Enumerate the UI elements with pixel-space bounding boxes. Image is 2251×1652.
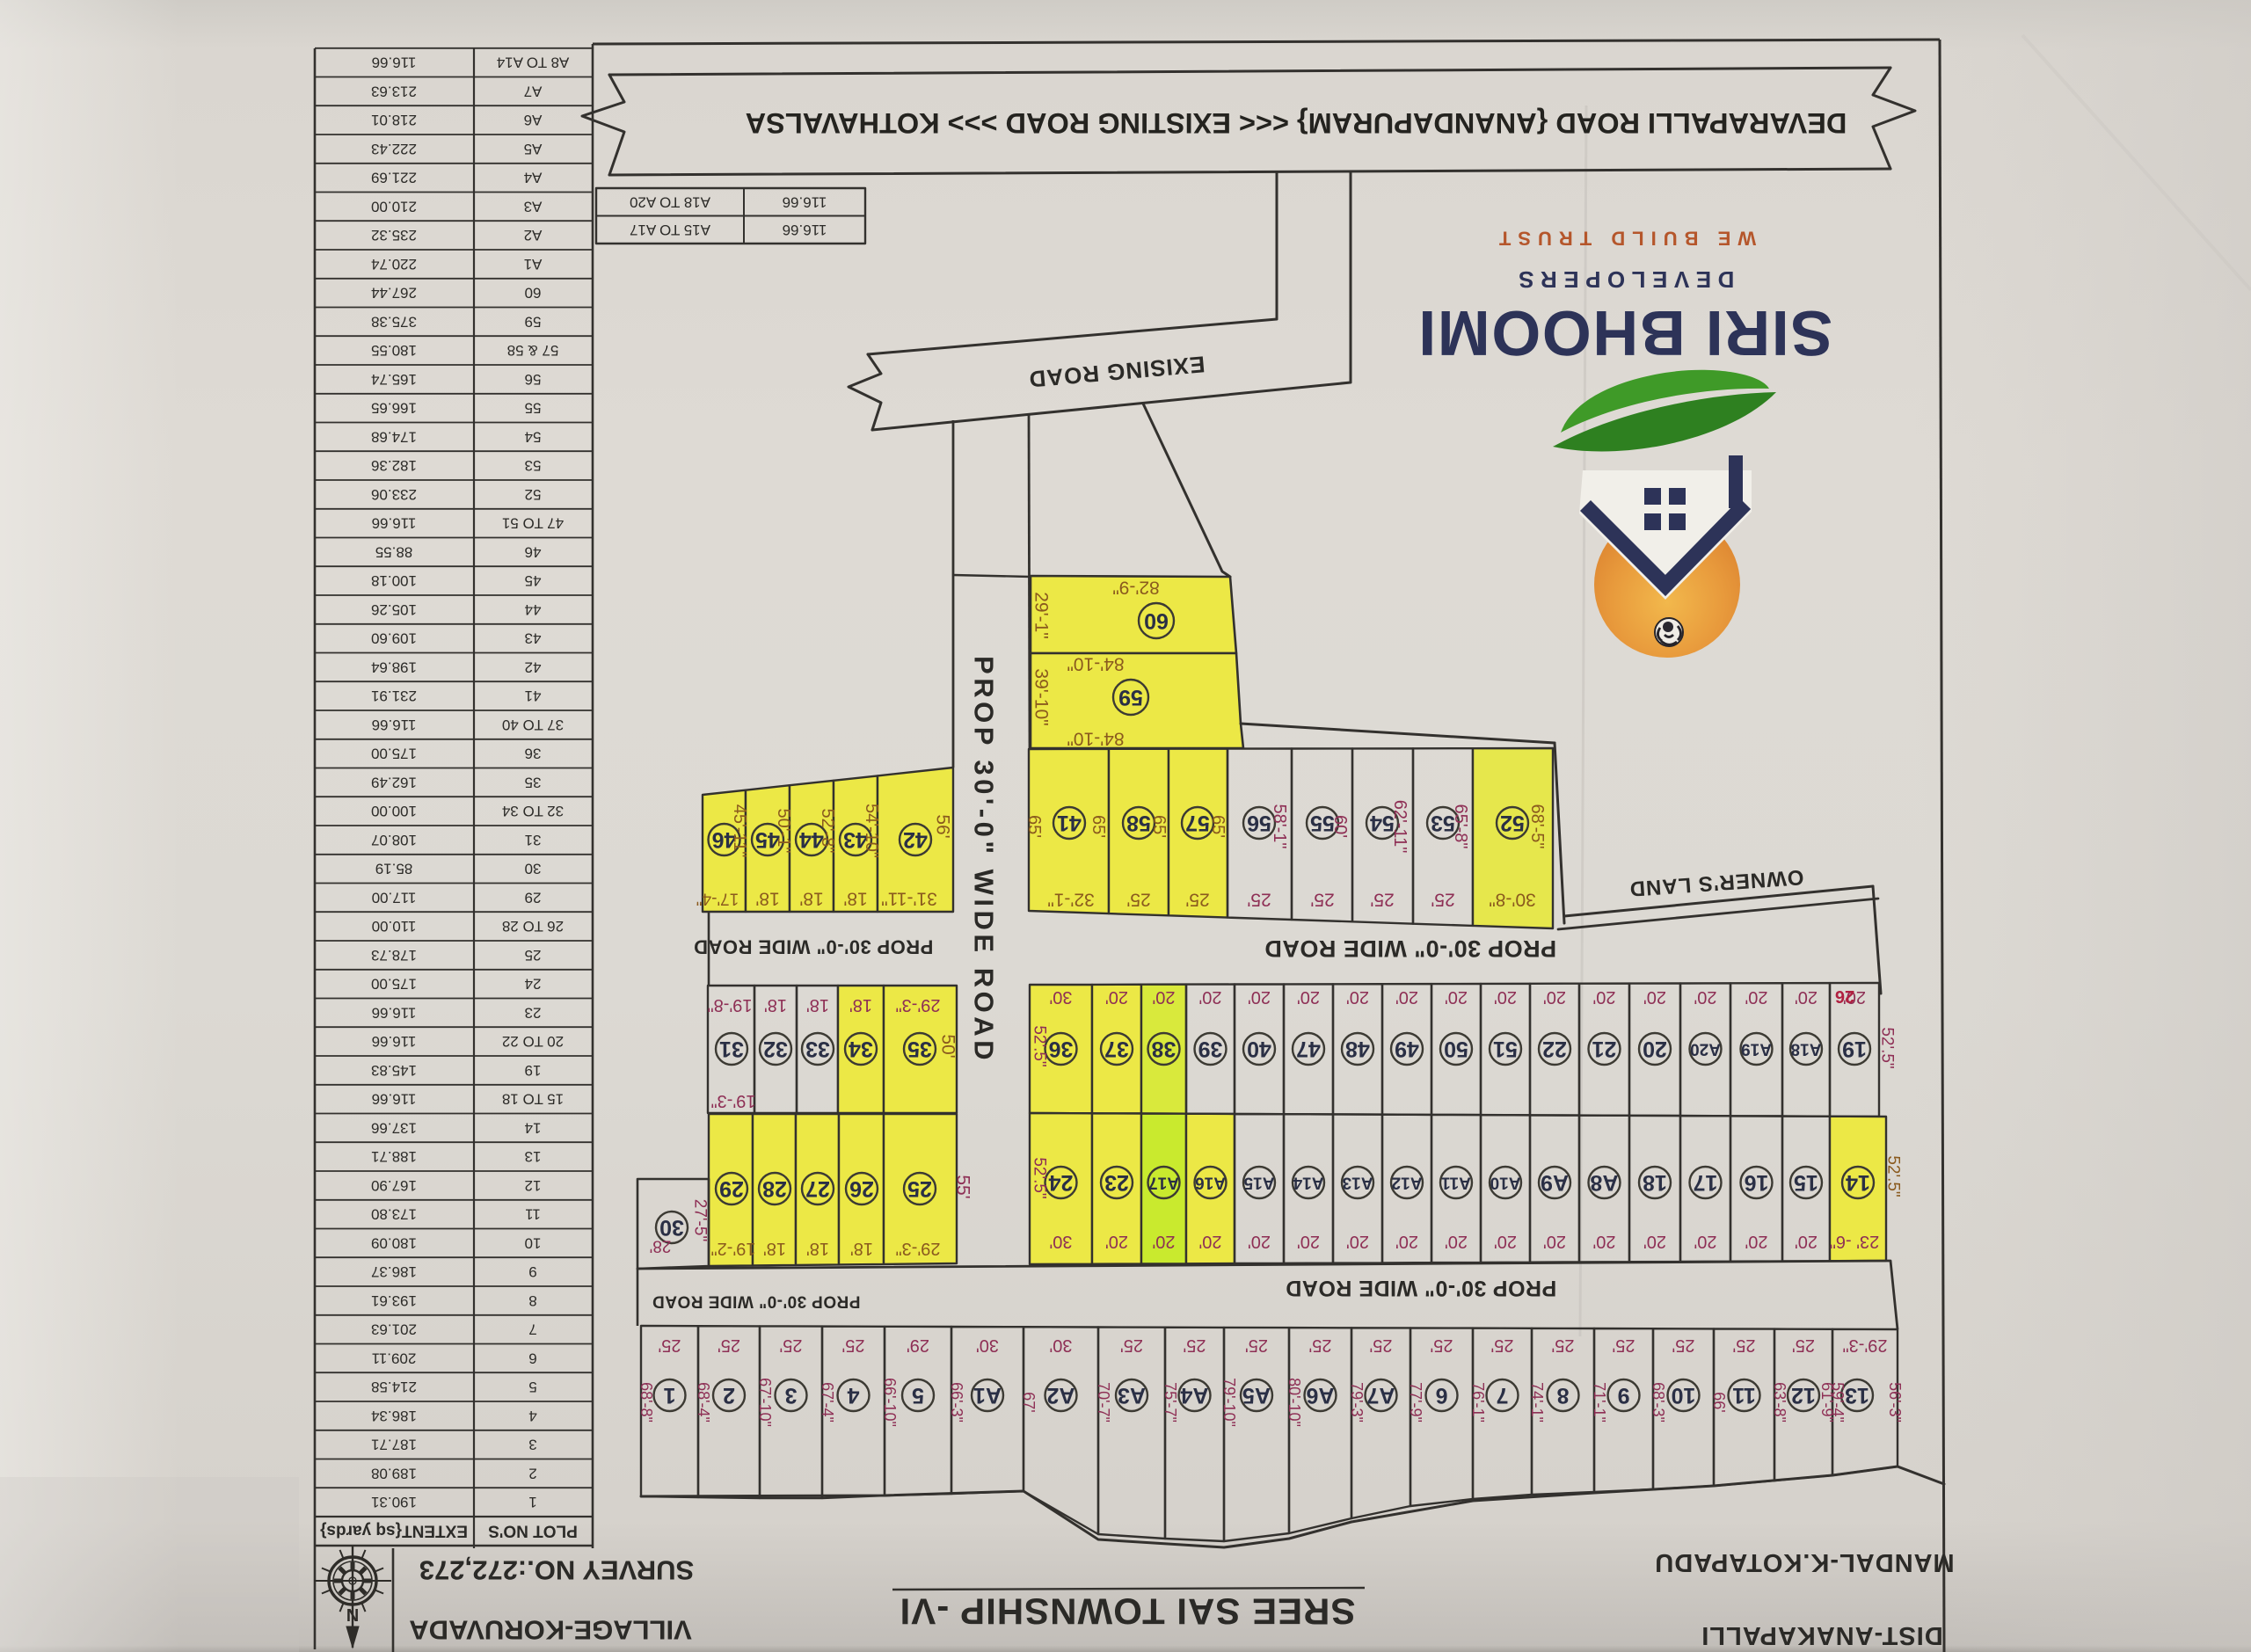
svg-text:26 TO 28: 26 TO 28 [502, 918, 564, 935]
svg-text:8: 8 [528, 1292, 536, 1309]
svg-text:58'-1": 58'-1" [1270, 804, 1289, 849]
svg-text:63'-8": 63'-8" [1771, 1382, 1788, 1423]
svg-text:39: 39 [1198, 1037, 1223, 1061]
svg-text:186.37: 186.37 [371, 1263, 417, 1280]
svg-text:30': 30' [976, 1335, 999, 1355]
svg-text:25': 25' [1310, 890, 1334, 910]
svg-text:37 TO 40: 37 TO 40 [502, 717, 564, 733]
svg-text:11: 11 [1732, 1383, 1756, 1408]
svg-text:A2: A2 [1047, 1383, 1075, 1408]
svg-text:19'-2": 19'-2" [711, 1239, 756, 1258]
svg-text:9: 9 [528, 1263, 536, 1280]
svg-text:A13: A13 [1343, 1174, 1373, 1192]
svg-text:116.66: 116.66 [783, 222, 827, 238]
svg-text:8: 8 [1556, 1383, 1569, 1408]
svg-text:DEVARAPALLI ROAD {ANANDAPURAM}: DEVARAPALLI ROAD {ANANDAPURAM} <<< EXIST… [746, 107, 1847, 139]
svg-text:25': 25' [718, 1335, 740, 1355]
svg-text:A10: A10 [1490, 1174, 1521, 1192]
svg-text:19'-3": 19'-3" [711, 1091, 756, 1110]
svg-text:9: 9 [1618, 1383, 1630, 1408]
svg-text:80'-10": 80'-10" [1286, 1378, 1303, 1427]
svg-text:116.66: 116.66 [372, 717, 417, 733]
svg-text:76'-1": 76'-1" [1469, 1382, 1487, 1423]
svg-text:20': 20' [1745, 1232, 1767, 1251]
svg-text:A15 TO A17: A15 TO A17 [630, 222, 710, 238]
svg-text:67': 67' [1020, 1392, 1038, 1412]
svg-text:PROP 30'-0" WIDE ROAD: PROP 30'-0" WIDE ROAD [1286, 1276, 1556, 1300]
svg-text:174.68: 174.68 [371, 428, 417, 445]
svg-text:19: 19 [525, 1062, 542, 1079]
svg-text:20': 20' [1445, 987, 1468, 1007]
svg-text:267.44: 267.44 [371, 285, 417, 302]
svg-text:221.69: 221.69 [371, 170, 417, 186]
svg-text:58: 58 [1126, 811, 1151, 835]
svg-text:23' -6": 23' -6" [1830, 1232, 1880, 1251]
svg-text:42: 42 [525, 659, 542, 675]
svg-text:31'-11": 31'-11" [881, 889, 937, 909]
svg-text:220.74: 220.74 [371, 256, 417, 273]
svg-text:178.73: 178.73 [371, 947, 417, 964]
svg-text:29'-3": 29'-3" [896, 995, 941, 1015]
svg-text:79'-10": 79'-10" [1220, 1378, 1238, 1427]
svg-text:20': 20' [1105, 1232, 1128, 1251]
svg-text:45: 45 [525, 572, 542, 589]
svg-text:50'-1": 50'-1" [774, 809, 793, 854]
svg-text:20': 20' [1643, 1232, 1666, 1251]
svg-text:A1: A1 [524, 256, 543, 273]
svg-text:46: 46 [525, 543, 542, 560]
svg-text:20': 20' [1297, 1232, 1320, 1251]
svg-text:38: 38 [1152, 1037, 1176, 1061]
svg-text:74'-1": 74'-1" [1528, 1382, 1546, 1423]
svg-text:11: 11 [525, 1206, 541, 1223]
svg-text:42: 42 [903, 827, 928, 852]
svg-text:A17: A17 [1148, 1174, 1179, 1192]
svg-text:56: 56 [1247, 811, 1271, 835]
svg-text:28': 28' [650, 1237, 672, 1255]
svg-text:A9: A9 [1541, 1170, 1569, 1195]
svg-text:116.66: 116.66 [372, 1004, 417, 1021]
svg-text:25: 25 [907, 1176, 932, 1201]
svg-text:25': 25' [1490, 1335, 1513, 1355]
svg-text:116.66: 116.66 [372, 1033, 417, 1050]
svg-text:25': 25' [1247, 890, 1271, 910]
svg-text:A18 TO A20: A18 TO A20 [630, 194, 710, 211]
svg-text:4: 4 [528, 1408, 536, 1424]
svg-text:A7: A7 [524, 83, 543, 99]
svg-text:52'.5": 52'.5" [1031, 1025, 1049, 1066]
svg-text:DEVELOPERS: DEVELOPERS [1512, 266, 1735, 293]
svg-text:14: 14 [525, 1119, 542, 1136]
svg-text:162.49: 162.49 [371, 774, 417, 790]
svg-text:25': 25' [1672, 1335, 1694, 1355]
svg-text:52'.5": 52'.5" [1884, 1155, 1903, 1197]
svg-text:182.36: 182.36 [371, 457, 417, 474]
svg-text:PROP 30'-0" WIDE ROAD: PROP 30'-0" WIDE ROAD [1264, 935, 1556, 962]
svg-text:68'-5": 68'-5" [1527, 804, 1547, 849]
svg-text:116.66: 116.66 [372, 55, 417, 71]
svg-text:84'-10": 84'-10" [1067, 654, 1124, 674]
svg-text:222.43: 222.43 [371, 141, 417, 157]
svg-text:41: 41 [525, 688, 542, 704]
svg-text:67'-4": 67'-4" [819, 1382, 836, 1423]
svg-text:VILLAGE-KORUVADA: VILLAGE-KORUVADA [409, 1615, 691, 1646]
svg-text:137.66: 137.66 [371, 1119, 417, 1136]
svg-text:56': 56' [933, 814, 953, 838]
svg-text:N: N [346, 1605, 359, 1624]
svg-text:37: 37 [1104, 1037, 1129, 1061]
svg-text:13: 13 [525, 1148, 542, 1165]
svg-text:32'-1": 32'-1" [1047, 890, 1095, 910]
svg-text:17'-4": 17'-4" [696, 890, 739, 908]
svg-text:24: 24 [1049, 1170, 1074, 1195]
svg-text:26: 26 [849, 1176, 874, 1201]
svg-text:20': 20' [1297, 987, 1320, 1007]
svg-text:20': 20' [1445, 1232, 1468, 1251]
svg-text:20': 20' [1198, 1232, 1221, 1251]
svg-text:82'-9": 82'-9" [1112, 578, 1160, 598]
svg-text:32: 32 [763, 1037, 788, 1061]
svg-text:57: 57 [1185, 811, 1210, 835]
svg-text:A14: A14 [1293, 1174, 1323, 1192]
svg-text:A15: A15 [1243, 1174, 1274, 1192]
svg-text:15: 15 [1794, 1170, 1818, 1195]
svg-text:25': 25' [841, 1335, 864, 1355]
svg-text:PLOT NO'S: PLOT NO'S [488, 1522, 578, 1540]
svg-text:52: 52 [1500, 811, 1525, 835]
svg-text:20': 20' [1543, 987, 1566, 1007]
svg-text:55': 55' [953, 1175, 973, 1198]
svg-text:190.31: 190.31 [371, 1494, 417, 1510]
svg-text:54: 54 [525, 428, 542, 445]
svg-text:35: 35 [525, 774, 542, 790]
svg-text:180.55: 180.55 [371, 342, 417, 359]
svg-text:100.00: 100.00 [371, 803, 417, 819]
svg-text:85.19: 85.19 [375, 861, 413, 877]
svg-text:235.32: 235.32 [371, 227, 417, 244]
svg-text:A5: A5 [1242, 1383, 1271, 1408]
svg-text:18': 18' [799, 889, 823, 909]
svg-text:84'-10": 84'-10" [1067, 729, 1124, 749]
svg-text:209.11: 209.11 [372, 1350, 417, 1366]
svg-text:175.00: 175.00 [371, 746, 417, 762]
svg-text:65': 65' [1208, 815, 1227, 838]
svg-text:55: 55 [525, 400, 542, 417]
svg-text:17: 17 [1694, 1170, 1718, 1195]
svg-text:105.26: 105.26 [371, 601, 417, 618]
svg-text:30': 30' [1049, 1335, 1072, 1355]
svg-text:65': 65' [1024, 815, 1044, 838]
svg-text:20': 20' [1694, 987, 1716, 1007]
svg-text:25': 25' [1792, 1335, 1815, 1355]
svg-text:29'-3": 29'-3" [896, 1239, 941, 1258]
svg-text:EXTENT{sq yards}: EXTENT{sq yards} [319, 1522, 467, 1540]
svg-text:25': 25' [1245, 1335, 1268, 1355]
svg-text:3: 3 [785, 1383, 798, 1408]
svg-text:SURVEY NO.:272,273: SURVEY NO.:272,273 [419, 1555, 694, 1586]
svg-text:25': 25' [1185, 890, 1209, 910]
svg-text:189.08: 189.08 [371, 1465, 417, 1481]
svg-text:A7: A7 [1367, 1383, 1395, 1408]
svg-text:43: 43 [525, 630, 542, 647]
svg-text:25': 25' [1732, 1335, 1755, 1355]
svg-text:108.07: 108.07 [371, 832, 417, 848]
svg-text:A5: A5 [524, 141, 543, 157]
svg-text:7: 7 [1497, 1383, 1509, 1408]
svg-text:375.38: 375.38 [371, 313, 417, 330]
svg-text:A18: A18 [1791, 1040, 1822, 1059]
svg-text:52'.5": 52'.5" [1031, 1157, 1049, 1198]
svg-text:A1: A1 [973, 1383, 1002, 1408]
svg-text:WE BUILD TRUST: WE BUILD TRUST [1492, 228, 1756, 250]
svg-text:A19: A19 [1741, 1040, 1772, 1059]
svg-text:18': 18' [806, 1239, 829, 1258]
svg-text:A4: A4 [1180, 1383, 1208, 1408]
svg-text:31: 31 [719, 1037, 744, 1061]
svg-text:49: 49 [1395, 1037, 1419, 1061]
svg-text:52'.5": 52'.5" [1878, 1027, 1897, 1068]
svg-text:2: 2 [723, 1383, 735, 1408]
svg-text:50': 50' [938, 1034, 958, 1058]
svg-text:16: 16 [1745, 1170, 1769, 1195]
svg-text:A16: A16 [1195, 1174, 1226, 1192]
svg-text:29: 29 [525, 889, 542, 906]
svg-text:13: 13 [1845, 1383, 1869, 1408]
svg-text:20': 20' [1795, 987, 1818, 1007]
svg-text:20': 20' [1494, 987, 1517, 1007]
svg-text:12: 12 [525, 1177, 542, 1194]
svg-text:214.58: 214.58 [371, 1379, 417, 1395]
svg-text:18': 18' [763, 1239, 786, 1258]
svg-text:25': 25' [658, 1335, 681, 1355]
svg-text:20': 20' [1152, 987, 1175, 1007]
svg-text:25': 25' [1120, 1335, 1143, 1355]
svg-text:30': 30' [1049, 987, 1072, 1007]
svg-text:30': 30' [1049, 1232, 1072, 1251]
svg-text:22: 22 [1542, 1037, 1567, 1061]
svg-text:A3: A3 [524, 198, 543, 215]
svg-text:116.66: 116.66 [372, 515, 417, 532]
svg-text:20': 20' [1105, 987, 1128, 1007]
svg-text:DIST-ANAKAPALLI: DIST-ANAKAPALLI [1701, 1621, 1942, 1649]
svg-text:23: 23 [525, 1004, 542, 1021]
svg-text:29'-1": 29'-1" [1031, 592, 1052, 639]
svg-text:39'-10": 39'-10" [1031, 668, 1052, 725]
svg-text:25': 25' [1308, 1335, 1331, 1355]
svg-text:19: 19 [1842, 1037, 1867, 1061]
svg-text:18: 18 [1643, 1170, 1667, 1195]
svg-text:20: 20 [1643, 1037, 1667, 1061]
svg-text:116.66: 116.66 [372, 1091, 417, 1108]
svg-text:75'-7": 75'-7" [1162, 1382, 1179, 1423]
svg-text:6: 6 [528, 1350, 536, 1366]
svg-text:233.06: 233.06 [371, 486, 417, 503]
svg-text:PROP 30'-0" WIDE ROAD: PROP 30'-0" WIDE ROAD [969, 656, 1000, 1064]
svg-text:201.63: 201.63 [371, 1321, 417, 1338]
svg-text:34: 34 [849, 1037, 873, 1061]
svg-text:166.65: 166.65 [371, 400, 417, 417]
svg-text:PROP 30'-0" WIDE ROAD: PROP 30'-0" WIDE ROAD [652, 1292, 861, 1311]
svg-text:187.71: 187.71 [371, 1437, 417, 1453]
svg-text:15 TO 18: 15 TO 18 [502, 1091, 564, 1108]
svg-text:65': 65' [1089, 815, 1108, 838]
svg-text:20': 20' [1592, 1232, 1615, 1251]
svg-text:20': 20' [1643, 987, 1666, 1007]
svg-text:65': 65' [1149, 815, 1169, 838]
svg-text:18': 18' [764, 995, 787, 1015]
svg-text:18': 18' [755, 889, 779, 909]
svg-text:62'-11": 62'-11" [1390, 800, 1410, 854]
svg-text:A12: A12 [1392, 1174, 1423, 1192]
svg-text:54'-10": 54'-10" [862, 804, 881, 858]
svg-text:59: 59 [525, 313, 542, 330]
svg-text:32 TO 34: 32 TO 34 [502, 803, 564, 819]
svg-text:145.83: 145.83 [371, 1062, 417, 1079]
svg-text:188.71: 188.71 [371, 1148, 417, 1165]
svg-text:PROP 30'-0" WIDE ROAD: PROP 30'-0" WIDE ROAD [694, 936, 934, 958]
svg-text:1: 1 [528, 1494, 536, 1510]
svg-text:7: 7 [528, 1321, 536, 1338]
svg-text:12: 12 [1791, 1383, 1816, 1408]
svg-text:186.34: 186.34 [371, 1408, 417, 1424]
svg-text:36: 36 [525, 746, 542, 762]
svg-text:71'-1": 71'-1" [1591, 1382, 1608, 1423]
svg-text:116.66: 116.66 [783, 194, 827, 211]
svg-text:110.00: 110.00 [372, 918, 417, 935]
svg-text:18': 18' [850, 1239, 873, 1258]
svg-text:25': 25' [1431, 890, 1454, 910]
svg-text:165.74: 165.74 [371, 371, 417, 388]
svg-text:231.91: 231.91 [371, 688, 417, 704]
svg-text:109.60: 109.60 [371, 630, 417, 647]
svg-text:60: 60 [1144, 608, 1169, 633]
svg-text:24: 24 [525, 976, 542, 993]
svg-text:29': 29' [907, 1335, 929, 1355]
svg-text:20': 20' [1745, 987, 1767, 1007]
svg-text:20': 20' [1152, 1232, 1175, 1251]
svg-text:5: 5 [528, 1379, 536, 1395]
svg-text:193.61: 193.61 [371, 1292, 417, 1309]
svg-text:29'-3": 29'-3" [1843, 1335, 1888, 1355]
svg-text:3: 3 [528, 1437, 536, 1453]
svg-text:A20: A20 [1690, 1040, 1721, 1059]
svg-text:25': 25' [1183, 1335, 1206, 1355]
svg-text:100.18: 100.18 [371, 572, 417, 589]
svg-text:167.90: 167.90 [371, 1177, 417, 1194]
svg-text:59'-4": 59'-4" [1829, 1382, 1847, 1423]
svg-text:23: 23 [1104, 1170, 1129, 1195]
svg-text:68'-4": 68'-4" [695, 1382, 712, 1423]
svg-text:79'-3": 79'-3" [1348, 1382, 1366, 1423]
svg-text:A11: A11 [1441, 1174, 1471, 1192]
svg-text:47 TO 51: 47 TO 51 [502, 515, 564, 532]
svg-text:A6: A6 [524, 112, 543, 128]
svg-text:53: 53 [525, 457, 542, 474]
svg-text:57 & 58: 57 & 58 [507, 342, 559, 359]
svg-text:25': 25' [1551, 1335, 1574, 1355]
svg-text:20': 20' [1795, 1232, 1818, 1251]
svg-text:26: 26 [1835, 986, 1854, 1006]
svg-text:88.55: 88.55 [375, 543, 413, 560]
svg-text:56'-3": 56'-3" [1886, 1382, 1904, 1423]
svg-text:173.80: 173.80 [371, 1206, 417, 1223]
svg-text:68'-8": 68'-8" [637, 1382, 655, 1423]
svg-text:213.63: 213.63 [371, 83, 417, 99]
svg-text:18': 18' [806, 995, 829, 1015]
svg-text:65'-8": 65'-8" [1451, 804, 1470, 849]
svg-text:27: 27 [805, 1176, 830, 1201]
svg-text:25': 25' [1612, 1335, 1635, 1355]
svg-text:10: 10 [525, 1234, 542, 1251]
svg-text:25': 25' [1430, 1335, 1453, 1355]
svg-text:25': 25' [1126, 890, 1150, 910]
svg-text:A4: A4 [524, 170, 543, 186]
svg-text:47: 47 [1296, 1037, 1321, 1061]
svg-text:70'-7": 70'-7" [1095, 1382, 1112, 1423]
svg-text:20': 20' [1592, 987, 1615, 1007]
svg-text:175.00: 175.00 [371, 976, 417, 993]
svg-text:60': 60' [1330, 815, 1350, 838]
svg-text:27'-5": 27'-5" [691, 1199, 710, 1241]
svg-text:20': 20' [1346, 987, 1369, 1007]
svg-text:52'-8": 52'-8" [818, 809, 837, 854]
svg-text:25': 25' [1370, 890, 1394, 910]
svg-text:14: 14 [1846, 1170, 1870, 1195]
svg-text:59: 59 [1118, 685, 1143, 710]
svg-text:20': 20' [1395, 987, 1418, 1007]
svg-text:SREE SAI TOWNSHIP -VI: SREE SAI TOWNSHIP -VI [900, 1591, 1356, 1633]
svg-text:21: 21 [1592, 1037, 1617, 1061]
svg-text:18': 18' [843, 889, 867, 909]
svg-text:40: 40 [1247, 1037, 1271, 1061]
svg-text:35: 35 [907, 1037, 932, 1061]
svg-text:66'-3": 66'-3" [948, 1382, 965, 1423]
svg-text:1: 1 [663, 1383, 675, 1408]
svg-text:MANDAL-K.KOTAPADU: MANDAL-K.KOTAPADU [1654, 1548, 1954, 1576]
svg-text:19'-8": 19'-8" [708, 995, 753, 1015]
svg-text:20': 20' [1494, 1232, 1517, 1251]
svg-text:66'-10": 66'-10" [881, 1378, 899, 1427]
svg-text:198.64: 198.64 [371, 659, 417, 675]
svg-text:218.01: 218.01 [371, 112, 417, 128]
svg-text:25': 25' [779, 1335, 802, 1355]
svg-text:2: 2 [528, 1465, 536, 1481]
svg-text:45'-11": 45'-11" [730, 804, 749, 858]
svg-text:20': 20' [1248, 987, 1271, 1007]
svg-text:20': 20' [1694, 1232, 1716, 1251]
svg-text:18': 18' [849, 995, 872, 1015]
svg-text:25': 25' [1369, 1335, 1392, 1355]
svg-text:77'-9": 77'-9" [1407, 1382, 1424, 1423]
svg-text:SIRI BHOOMI: SIRI BHOOMI [1417, 297, 1833, 368]
svg-text:5: 5 [912, 1383, 924, 1408]
svg-text:30'-8": 30'-8" [1489, 890, 1536, 910]
svg-text:210.00: 210.00 [371, 198, 417, 215]
svg-text:4: 4 [847, 1383, 859, 1408]
svg-text:A3: A3 [1118, 1383, 1146, 1408]
svg-text:30: 30 [525, 861, 542, 877]
svg-text:51: 51 [1493, 1037, 1518, 1061]
svg-text:50: 50 [1444, 1037, 1468, 1061]
svg-text:66': 66' [1710, 1392, 1728, 1412]
svg-text:20': 20' [1198, 987, 1221, 1007]
svg-text:6: 6 [1436, 1383, 1448, 1408]
svg-text:31: 31 [525, 832, 542, 848]
svg-text:56: 56 [525, 371, 542, 388]
svg-text:41: 41 [1057, 811, 1082, 835]
svg-text:67'-10": 67'-10" [756, 1378, 774, 1427]
svg-text:44: 44 [525, 601, 542, 618]
